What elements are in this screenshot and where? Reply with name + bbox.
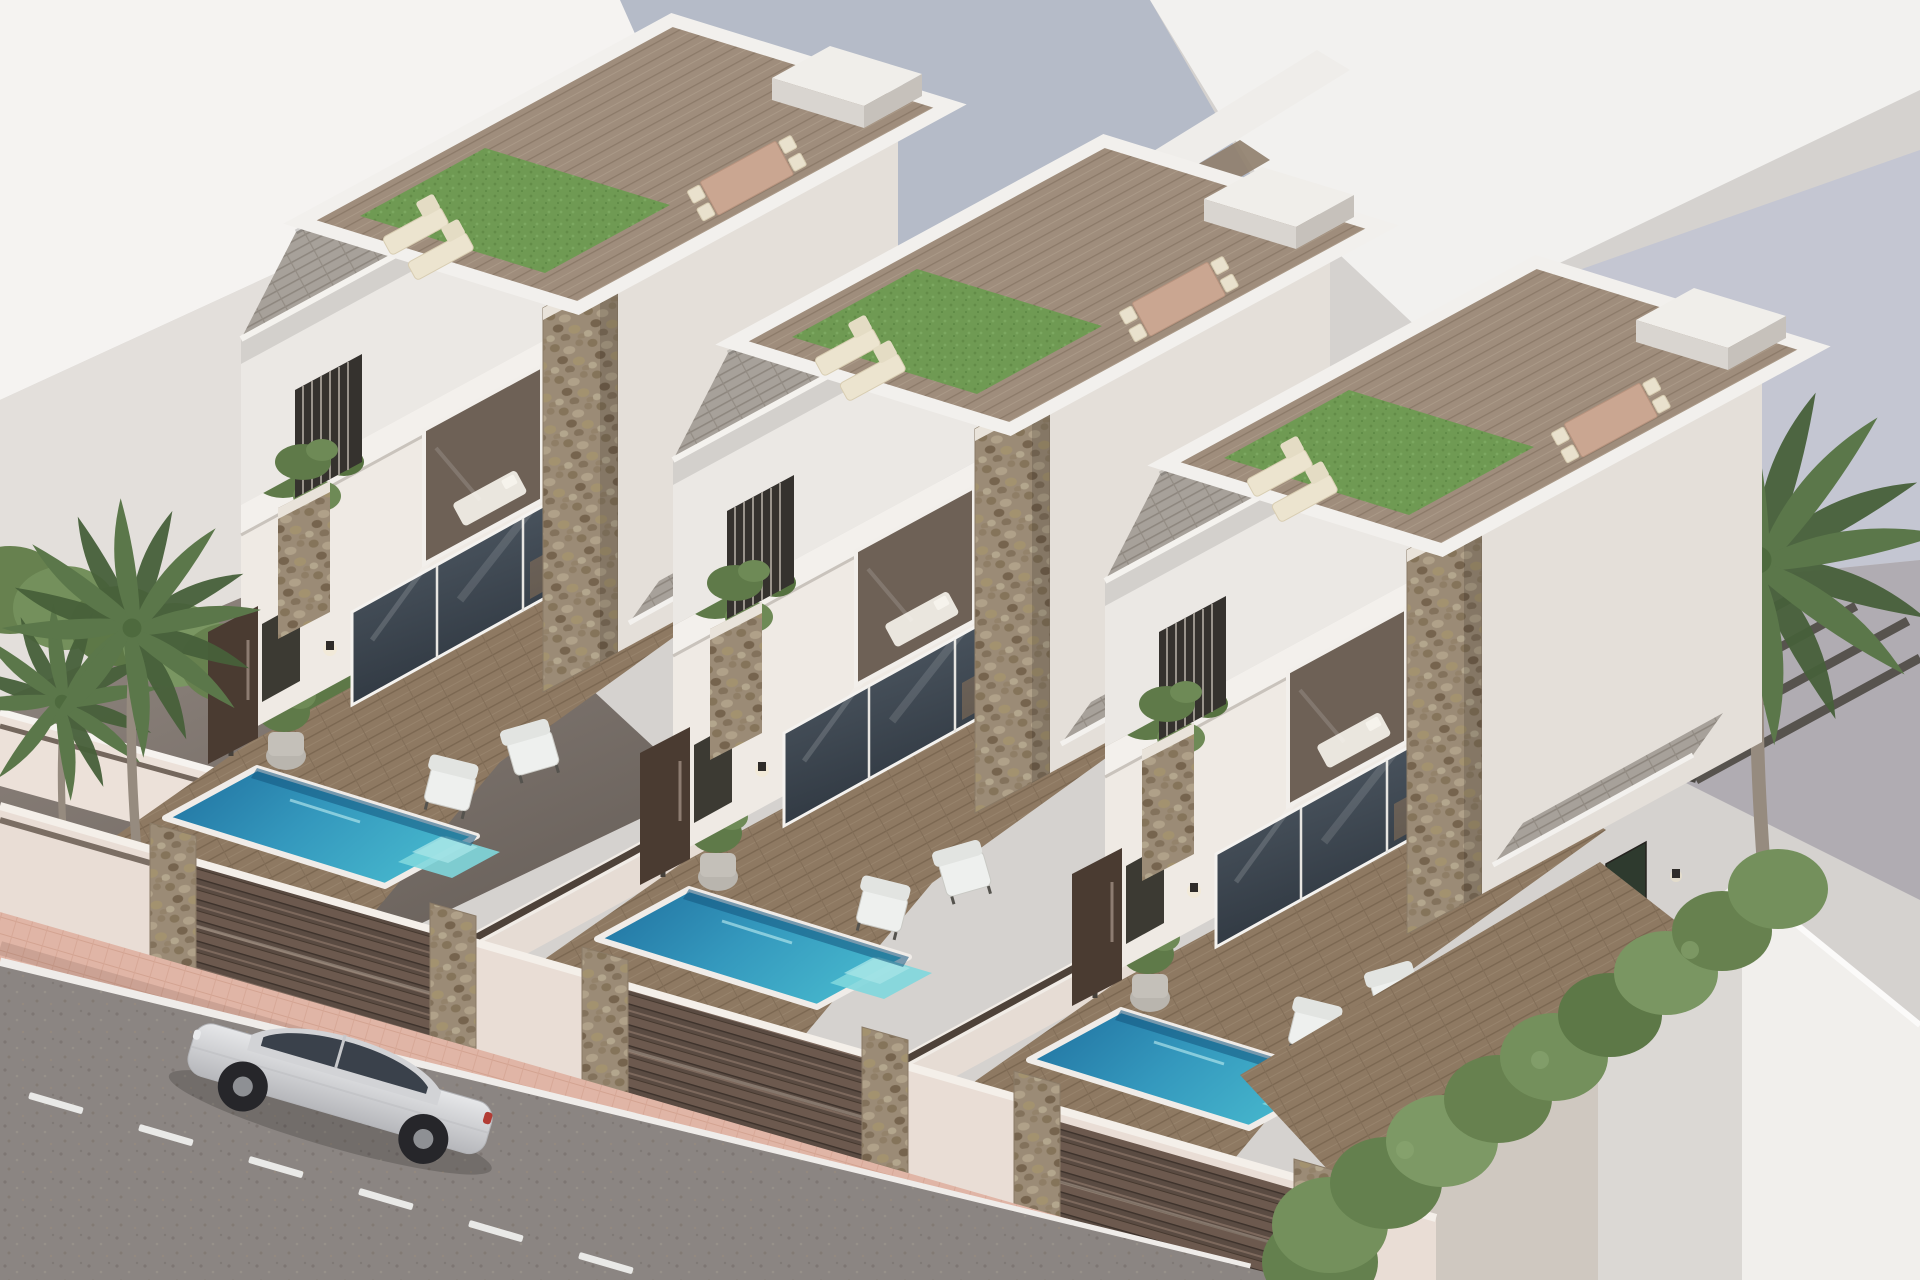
rendered-image: [0, 0, 1920, 1280]
fence-stone-pillar: [150, 823, 196, 969]
fence-stone-pillar: [862, 1027, 908, 1173]
fence-stone-pillar: [1014, 1071, 1060, 1217]
fence-stone-pillar: [430, 903, 476, 1049]
fence-stone-pillar: [582, 947, 628, 1093]
